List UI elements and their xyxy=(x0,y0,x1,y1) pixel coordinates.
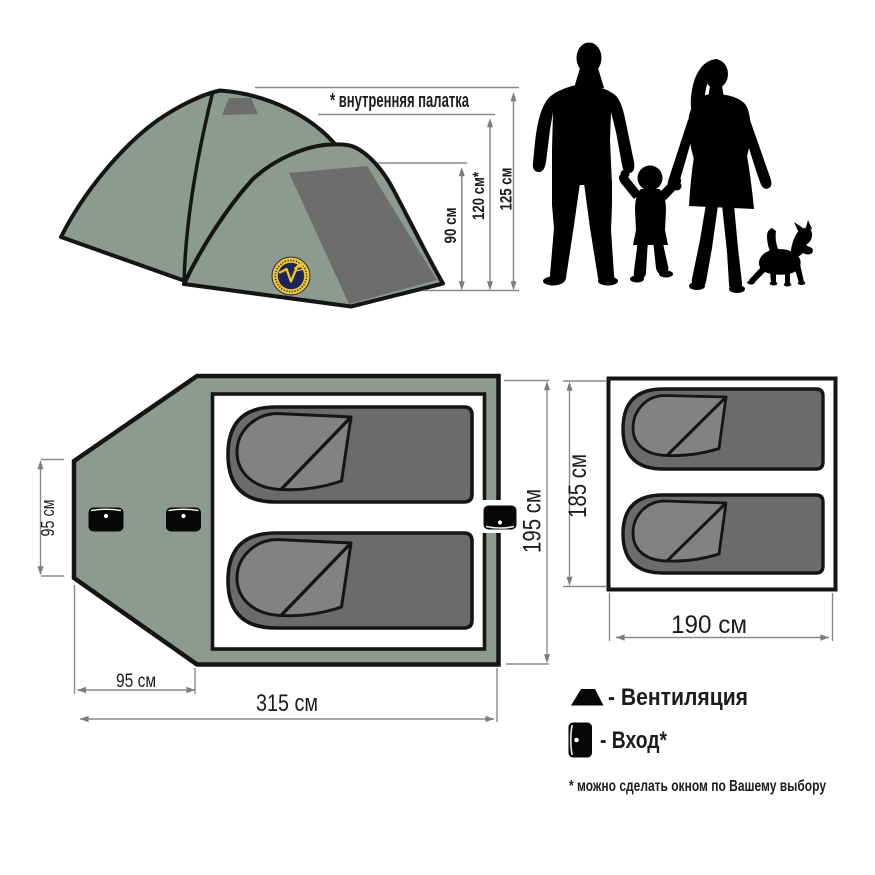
svg-text:190 см: 190 см xyxy=(671,611,747,639)
svg-text:185 см: 185 см xyxy=(564,454,592,518)
svg-text:95 см: 95 см xyxy=(116,671,156,692)
svg-text:* внутренняя палатка: * внутренняя палатка xyxy=(330,90,470,112)
svg-text:315 см: 315 см xyxy=(256,690,318,717)
svg-text:- Вход*: - Вход* xyxy=(600,727,668,754)
svg-text:- Вентиляция: - Вентиляция xyxy=(608,684,748,711)
svg-text:* можно сделать окном по Вашем: * можно сделать окном по Вашему выбору xyxy=(569,778,826,795)
svg-text:90 см: 90 см xyxy=(441,208,460,244)
svg-text:195 см: 195 см xyxy=(519,489,547,553)
svg-text:95 см: 95 см xyxy=(38,500,58,537)
svg-text:125 см: 125 см xyxy=(497,168,516,211)
svg-text:120 см*: 120 см* xyxy=(469,172,488,220)
